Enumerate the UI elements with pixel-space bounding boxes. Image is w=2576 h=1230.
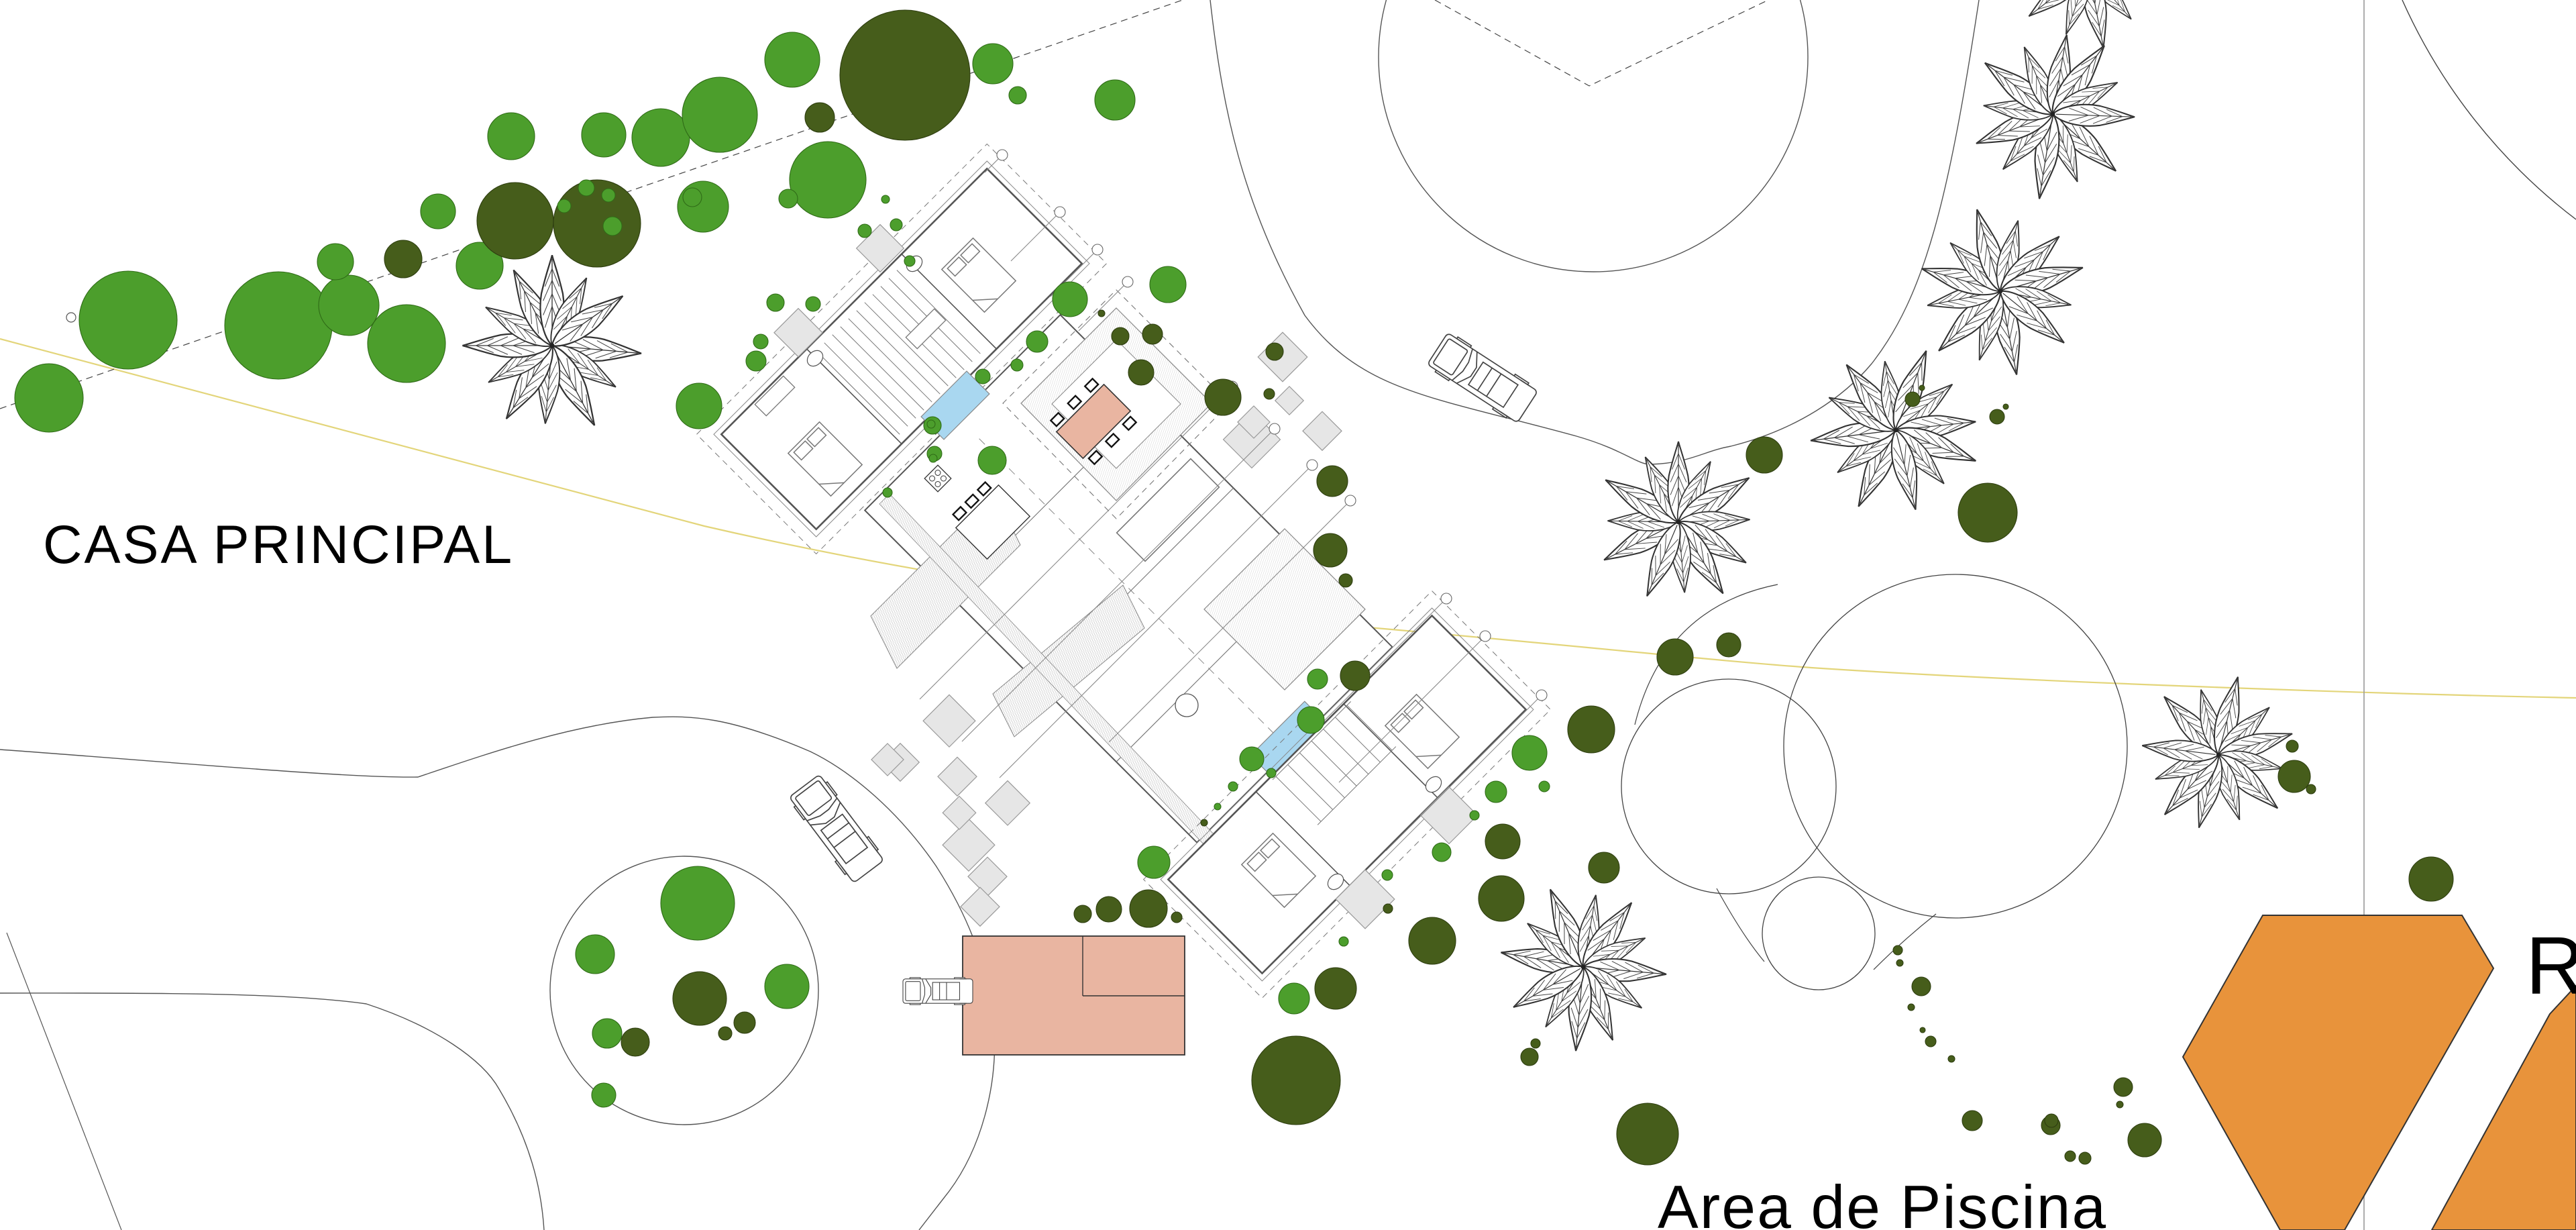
svg-text:Area de Piscina: Area de Piscina — [1658, 1174, 2107, 1230]
svg-text:RANCHO: RANCHO — [2526, 920, 2576, 1011]
svg-text:CASA PRINCIPAL: CASA PRINCIPAL — [43, 515, 514, 575]
